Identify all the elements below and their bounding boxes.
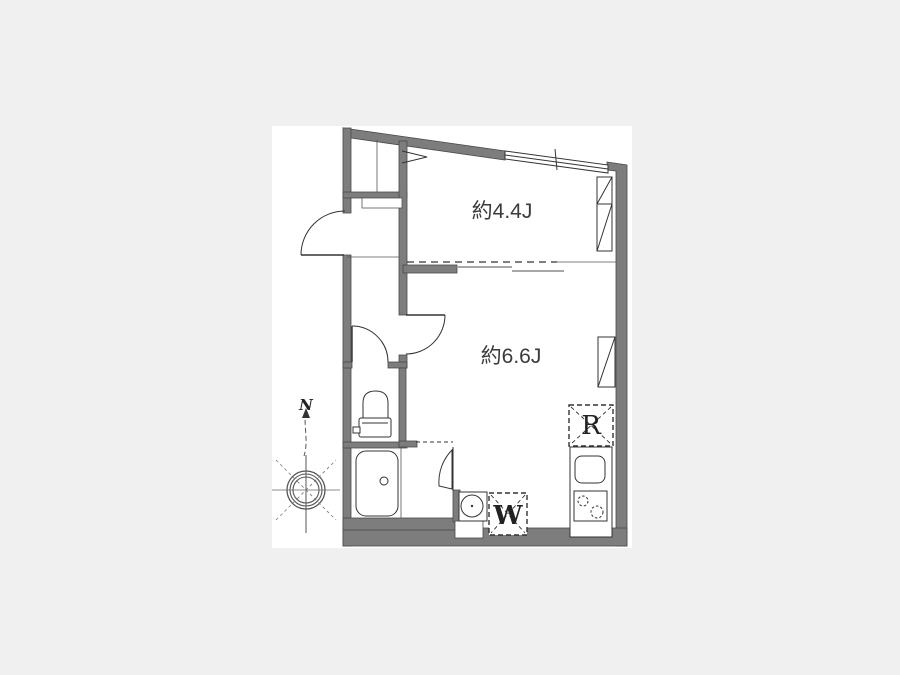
entry-step — [362, 198, 402, 208]
closet-bottom-wall — [343, 192, 407, 198]
washer-label: W — [492, 501, 523, 531]
kitchen-icon — [570, 447, 612, 537]
compass-north-label: N — [298, 396, 314, 414]
hall-wall-vertical — [399, 141, 407, 315]
refrigerator-space: R — [569, 405, 613, 446]
toilet-bottom-wall — [343, 442, 407, 448]
washroom-wall-stub — [399, 441, 417, 447]
left-wall-upper — [343, 128, 351, 213]
wall-recess — [455, 521, 483, 538]
washer-space: W — [489, 493, 527, 535]
toilet-right-wall — [399, 368, 406, 442]
room-partition-stub — [403, 265, 457, 273]
bathtub-icon — [356, 447, 401, 518]
toilet-top-wall-left — [343, 362, 352, 368]
kitchen-stove — [574, 491, 607, 521]
room1-size-label: 約4.4J — [472, 200, 533, 223]
floor-plan-canvas: W R — [0, 0, 900, 675]
kitchen-sink — [575, 456, 605, 483]
toilet-top-wall-right — [388, 362, 407, 368]
left-wall-lower — [343, 255, 351, 546]
room2-size-label: 約6.6J — [481, 345, 542, 368]
bathroom-bottom-wall — [343, 518, 457, 530]
floor-plan-page: W R — [0, 0, 900, 675]
refrigerator-label: R — [581, 411, 602, 441]
washbasin-icon — [459, 492, 487, 521]
